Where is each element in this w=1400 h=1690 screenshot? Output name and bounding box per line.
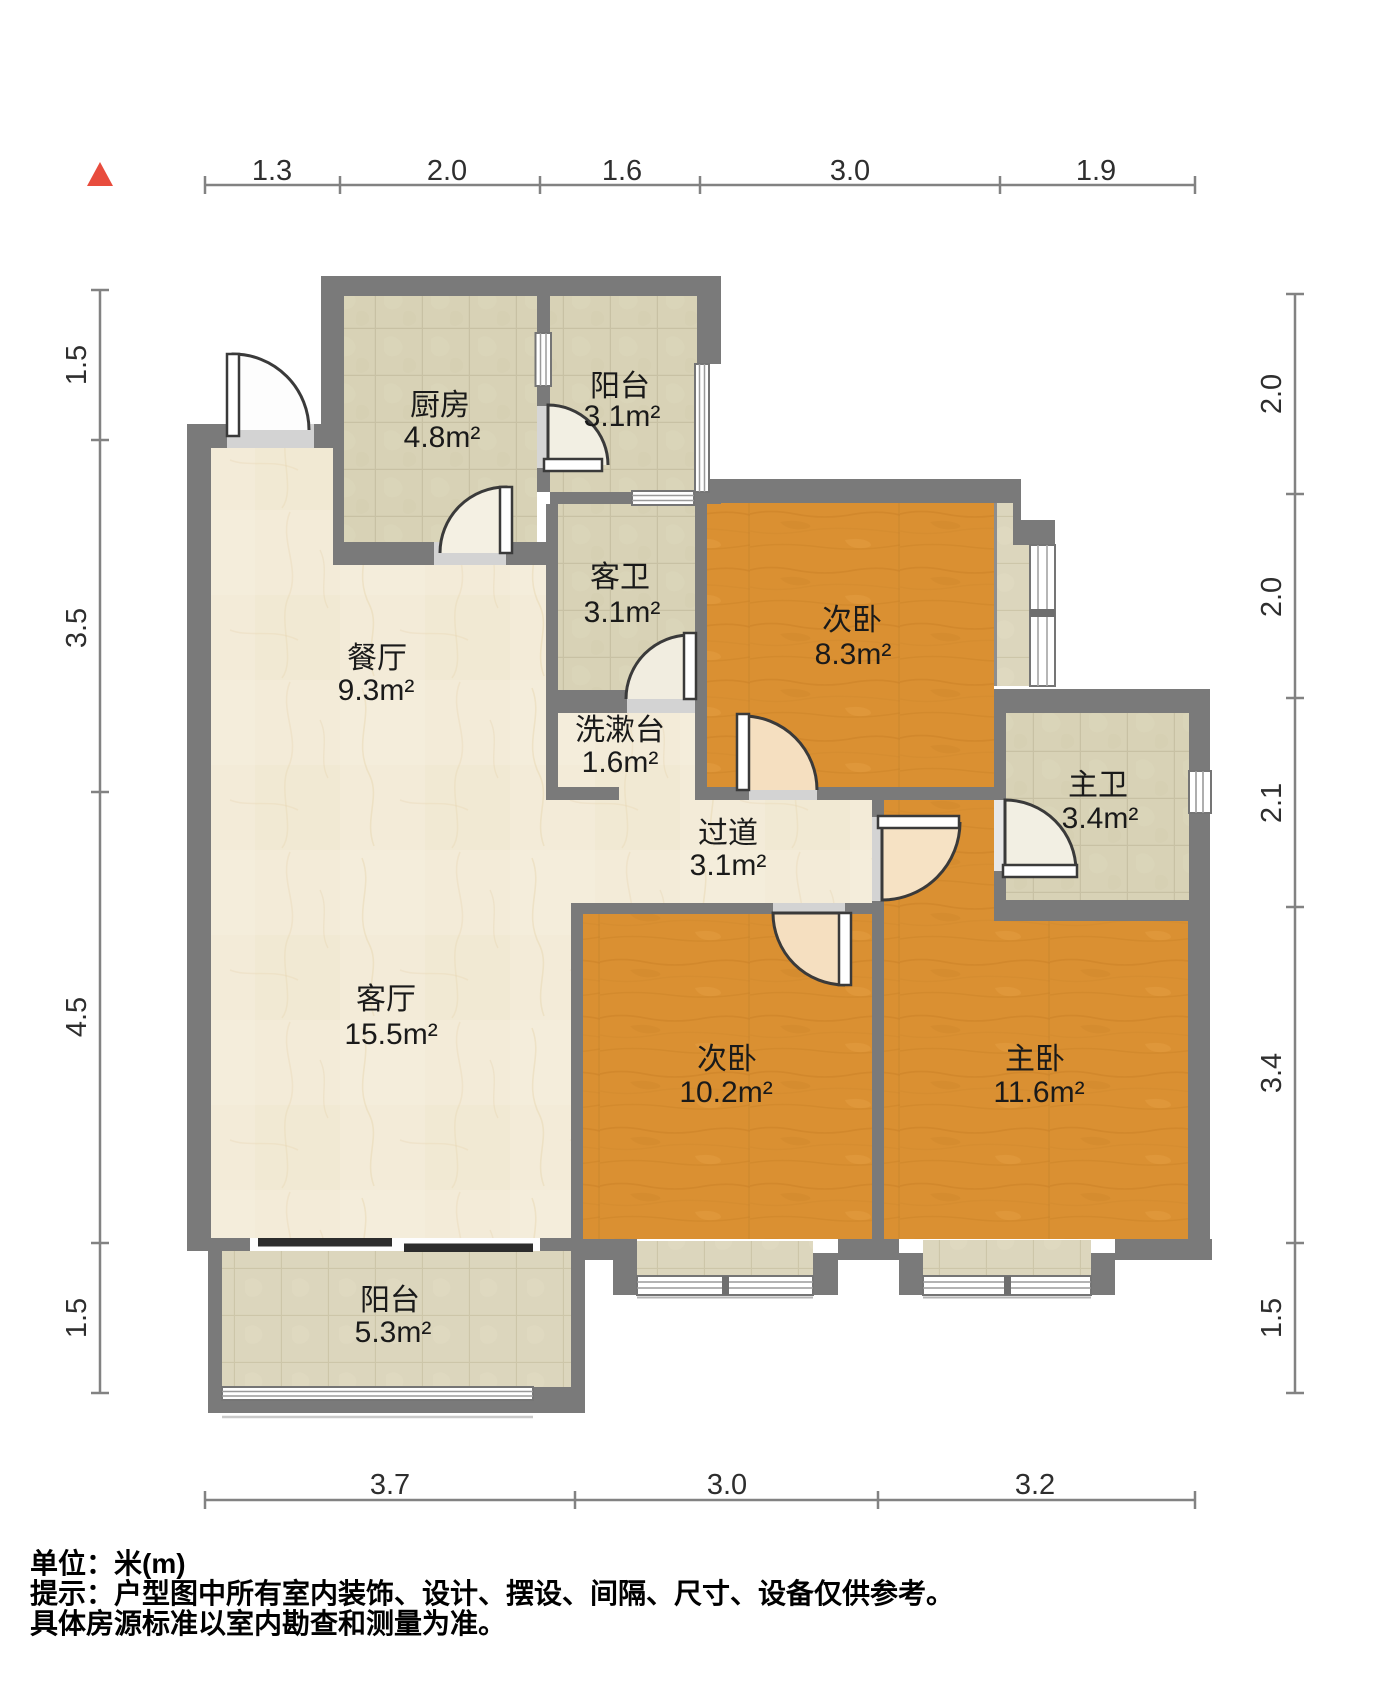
svg-text:8.3m²: 8.3m²	[815, 638, 892, 671]
svg-text:1.3: 1.3	[252, 155, 292, 187]
svg-text:洗漱台: 洗漱台	[575, 714, 665, 747]
svg-text:1.9: 1.9	[1076, 155, 1116, 187]
svg-text:4.5: 4.5	[61, 997, 93, 1037]
svg-text:主卫: 主卫	[1068, 769, 1128, 802]
svg-text:3.4: 3.4	[1256, 1053, 1288, 1093]
svg-text:1.6: 1.6	[602, 155, 642, 187]
svg-text:1.5: 1.5	[61, 1298, 93, 1338]
svg-text:3.5: 3.5	[61, 608, 93, 648]
svg-text:1.6m²: 1.6m²	[582, 746, 659, 779]
svg-text:厨房: 厨房	[410, 389, 470, 422]
svg-text:3.1m²: 3.1m²	[584, 596, 661, 629]
svg-text:11.6m²: 11.6m²	[993, 1076, 1084, 1109]
svg-text:2.0: 2.0	[1256, 374, 1288, 414]
svg-text:单位：米(m): 单位：米(m)	[30, 1547, 186, 1579]
svg-text:餐厅: 餐厅	[347, 642, 407, 675]
svg-text:3.0: 3.0	[707, 1469, 747, 1501]
svg-text:3.2: 3.2	[1015, 1469, 1055, 1501]
svg-text:4.8m²: 4.8m²	[404, 421, 481, 454]
svg-text:阳台: 阳台	[360, 1284, 420, 1317]
svg-text:1.5: 1.5	[1256, 1298, 1288, 1338]
svg-text:9.3m²: 9.3m²	[338, 674, 415, 707]
svg-text:1.5: 1.5	[61, 345, 93, 385]
svg-text:提示：户型图中所有室内装饰、设计、摆设、间隔、尺寸、设备仅供: 提示：户型图中所有室内装饰、设计、摆设、间隔、尺寸、设备仅供参考。	[30, 1577, 954, 1609]
svg-text:15.5m²: 15.5m²	[344, 1018, 437, 1051]
svg-text:客卫: 客卫	[590, 561, 650, 594]
svg-text:2.0: 2.0	[427, 155, 467, 187]
svg-text:3.1m²: 3.1m²	[690, 849, 767, 882]
svg-text:2.0: 2.0	[1256, 577, 1288, 617]
svg-text:客厅: 客厅	[356, 983, 416, 1016]
svg-text:次卧: 次卧	[822, 604, 882, 637]
svg-text:主卧: 主卧	[1005, 1043, 1065, 1076]
svg-text:3.4m²: 3.4m²	[1062, 802, 1139, 835]
svg-text:5.3m²: 5.3m²	[355, 1316, 432, 1349]
svg-text:2.1: 2.1	[1256, 783, 1288, 823]
svg-text:阳台: 阳台	[590, 370, 650, 403]
svg-text:次卧: 次卧	[697, 1043, 757, 1076]
svg-text:过道: 过道	[698, 817, 758, 850]
svg-text:具体房源标准以室内勘查和测量为准。: 具体房源标准以室内勘查和测量为准。	[30, 1607, 506, 1639]
svg-text:10.2m²: 10.2m²	[679, 1076, 772, 1109]
svg-text:3.7: 3.7	[370, 1469, 410, 1501]
svg-text:3.1m²: 3.1m²	[584, 400, 661, 433]
svg-text:3.0: 3.0	[830, 155, 870, 187]
